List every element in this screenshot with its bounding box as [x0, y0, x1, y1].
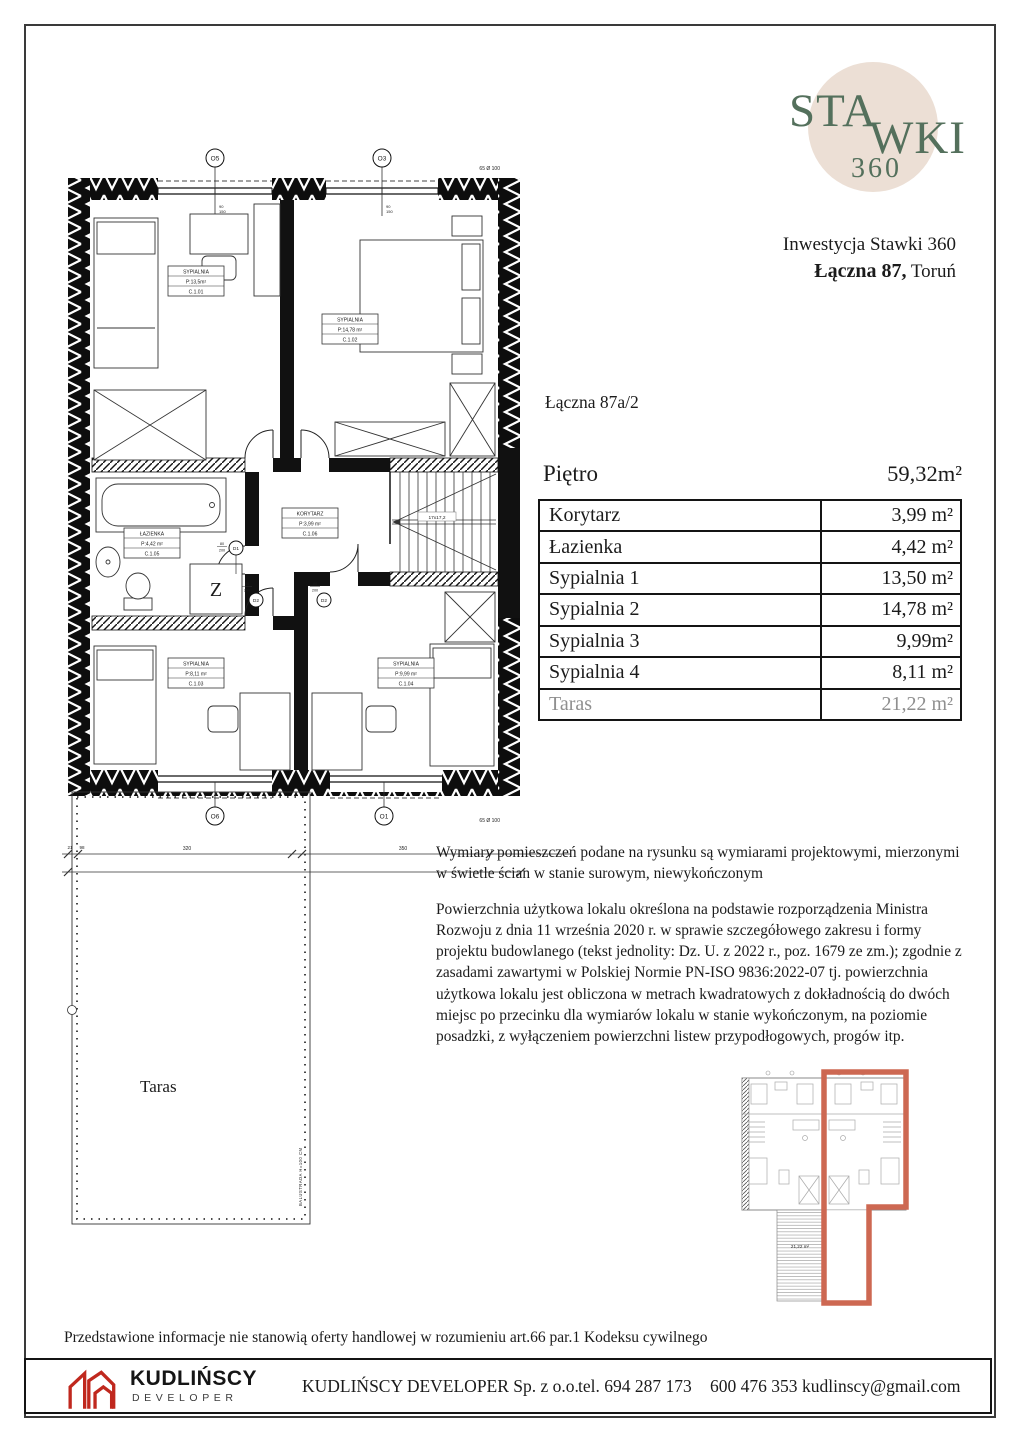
table-row: Sypialnia 214,78 m² [540, 593, 960, 624]
mini-location-plan: 21,22 m² [735, 1058, 975, 1308]
terrace: Taras BALUSTRADA H=100 CM [68, 792, 311, 1224]
vent-note-bottom: 65 Ø 100 [479, 818, 500, 824]
svg-text:KORYTARZ: KORYTARZ [297, 512, 324, 518]
phone-2: 600 476 353 [710, 1376, 798, 1397]
note-area-norm: Powierzchnia użytkowa lokalu określona n… [436, 899, 964, 1047]
developer-logo-icon [66, 1368, 122, 1410]
svg-text:C.1.03: C.1.03 [189, 682, 204, 688]
row-value: 3,99 m² [822, 501, 960, 530]
window-mark-o6: O6 [211, 813, 220, 820]
row-value: 8,11 m² [822, 658, 960, 687]
row-value: 9,99m² [822, 627, 960, 656]
brand-logo-360: 360 [851, 153, 902, 185]
investment-address: Inwestycja Stawki 360 Łączna 87, Toruń [656, 231, 956, 285]
address-street: Łączna 87, [814, 260, 906, 282]
developer-logo-name: KUDLIŃSCY [130, 1367, 257, 1391]
svg-text:P:13,5m²: P:13,5m² [186, 280, 207, 286]
row-label: Taras [540, 690, 822, 719]
svg-text:P:9,99 m²: P:9,99 m² [395, 672, 417, 678]
row-label: Korytarz [540, 501, 822, 530]
page: STA WKI 360 Inwestycja Stawki 360 Łączna… [0, 0, 1018, 1440]
room-label-sypialnia-1: SYPIALNIA P:13,5m² C.1.01 [168, 266, 224, 296]
svg-text:150: 150 [386, 209, 393, 214]
svg-text:ŁAZIENKA: ŁAZIENKA [140, 532, 165, 538]
floor-summary-row: Piętro 59,32m² [543, 461, 962, 487]
svg-text:80: 80 [220, 542, 224, 546]
phone-1: tel. 694 287 173 [578, 1376, 692, 1397]
svg-text:320: 320 [183, 846, 192, 852]
svg-text:C.1.05: C.1.05 [145, 552, 160, 558]
svg-text:150: 150 [219, 209, 226, 214]
window-bottom-right: O1 [330, 770, 442, 825]
row-label: Sypialnia 4 [540, 658, 822, 687]
washer-symbol: Z [210, 579, 222, 601]
brand-logo-text: STA [789, 84, 877, 138]
table-row-taras: Taras21,22 m² [540, 688, 960, 719]
window-top-right: O3 90150 [326, 149, 438, 216]
balustrade-note: BALUSTRADA H=100 CM [298, 1148, 303, 1207]
svg-text:C.1.01: C.1.01 [189, 290, 204, 296]
svg-text:SYPIALNIA: SYPIALNIA [393, 662, 420, 668]
row-value: 21,22 m² [822, 690, 960, 719]
svg-text:200: 200 [312, 589, 318, 593]
row-value: 13,50 m² [822, 564, 960, 593]
room-label-sypialnia-3: SYPIALNIA P:9,99 m² C.1.04 [378, 658, 434, 688]
vent-note-top: 65 Ø 100 [479, 166, 500, 172]
row-value: 4,42 m² [822, 532, 960, 561]
room-label-korytarz: KORYTARZ P:3,99 m² C.1.06 [282, 508, 338, 538]
room-label-sypialnia-2: SYPIALNIA P:14,78 m² C.1.02 [322, 314, 378, 344]
terrace-label: Taras [140, 1077, 177, 1096]
floor-area: 59,32m² [887, 461, 962, 487]
floor-plan-drawing: O5 90150 O3 90150 O6 [40, 148, 580, 1240]
legal-disclaimer: Przedstawione informacje nie stanowią of… [64, 1329, 708, 1347]
svg-text:C.1.06: C.1.06 [303, 532, 318, 538]
table-row: Sypialnia 48,11 m² [540, 656, 960, 687]
svg-text:SYPIALNIA: SYPIALNIA [183, 662, 210, 668]
svg-text:D2: D2 [321, 598, 327, 604]
notes-block: Wymiary pomieszczeń podane na rysunku są… [436, 842, 964, 1047]
stairs: 17x17,2 [392, 472, 496, 572]
table-row: Sypialnia 113,50 m² [540, 562, 960, 593]
row-label: Sypialnia 2 [540, 595, 822, 624]
table-row: Korytarz3,99 m² [540, 501, 960, 530]
svg-text:80: 80 [313, 582, 317, 586]
svg-text:200: 200 [244, 589, 250, 593]
svg-text:C.1.04: C.1.04 [399, 682, 414, 688]
svg-text:P:3,99 m²: P:3,99 m² [299, 522, 321, 528]
svg-text:80: 80 [245, 582, 249, 586]
footer-bar: KUDLIŃSCY DEVELOPER KUDLIŃSCY DEVELOPER … [24, 1358, 992, 1414]
svg-text:98: 98 [79, 845, 85, 850]
stairs-note: 17x17,2 [428, 515, 445, 521]
table-row: Łazienka4,42 m² [540, 530, 960, 561]
svg-text:200: 200 [219, 549, 225, 553]
mini-terrace-area: 21,22 m² [791, 1244, 810, 1249]
svg-text:SYPIALNIA: SYPIALNIA [183, 270, 210, 276]
window-mark-o3: O3 [378, 155, 387, 162]
svg-text:P:4,42 m²: P:4,42 m² [141, 542, 163, 548]
company-name: KUDLIŃSCY DEVELOPER Sp. z o.o. [302, 1376, 579, 1397]
svg-text:C.1.02: C.1.02 [343, 338, 358, 344]
row-label: Sypialnia 1 [540, 564, 822, 593]
room-label-sypialnia-4: SYPIALNIA P:8,11 m² C.1.03 [168, 658, 224, 688]
room-area-table: Korytarz3,99 m² Łazienka4,42 m² Sypialni… [538, 499, 962, 721]
svg-text:P:14,78 m²: P:14,78 m² [338, 328, 363, 334]
svg-text:P:8,11 m²: P:8,11 m² [185, 672, 207, 678]
svg-text:D2: D2 [253, 598, 259, 604]
table-row: Sypialnia 39,99m² [540, 625, 960, 656]
investment-name: Inwestycja Stawki 360 [656, 231, 956, 258]
developer-logo-subtitle: DEVELOPER [132, 1392, 238, 1404]
email: kudlinscy@gmail.com [802, 1376, 961, 1397]
row-label: Sypialnia 3 [540, 627, 822, 656]
note-dimensions: Wymiary pomieszczeń podane na rysunku są… [436, 842, 964, 884]
window-mark-o1: O1 [380, 813, 389, 820]
row-value: 14,78 m² [822, 595, 960, 624]
svg-text:D1: D1 [233, 546, 239, 552]
window-mark-o5: O5 [211, 155, 220, 162]
row-label: Łazienka [540, 532, 822, 561]
svg-text:350: 350 [399, 846, 408, 852]
address-city: Toruń [906, 261, 956, 282]
room-label-lazienka: ŁAZIENKA P:4,42 m² C.1.05 [124, 528, 180, 558]
svg-text:SYPIALNIA: SYPIALNIA [337, 318, 364, 324]
address-line: Łączna 87, Toruń [656, 258, 956, 285]
